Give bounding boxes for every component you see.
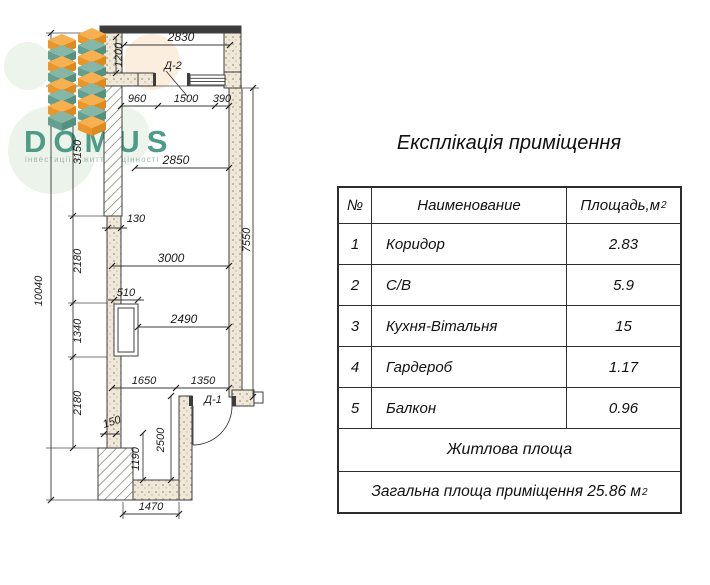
table-row: 4 Гардероб 1.17 [339, 346, 680, 387]
row-num: 4 [339, 347, 372, 387]
row-name: Гардероб [372, 347, 567, 387]
header-area-sup: 2 [661, 200, 667, 211]
row-area: 5.9 [567, 265, 680, 305]
row-name: С/В [372, 265, 567, 305]
header-area: Площадь,м2 [567, 188, 680, 223]
row-name: Коридор [372, 224, 567, 264]
header-area-text: Площадь,м [580, 197, 660, 214]
floor-plan-sheet: DOMUS інвестиції у життєві цінності [0, 0, 710, 585]
explication-table: № Наименование Площадь,м2 1 Коридор 2.83… [337, 186, 682, 514]
row-area: 1.17 [567, 347, 680, 387]
row-num: 1 [339, 224, 372, 264]
row-area: 2.83 [567, 224, 680, 264]
living-area-label: Житлова площа [339, 429, 680, 471]
table-header-row: № Наименование Площадь,м2 [339, 188, 680, 223]
row-area: 15 [567, 306, 680, 346]
header-num: № [339, 188, 372, 223]
table-footer-living: Житлова площа [339, 428, 680, 471]
table-row: 1 Коридор 2.83 [339, 223, 680, 264]
row-num: 3 [339, 306, 372, 346]
total-area-label: Загальна площа приміщення 25.86 м2 [339, 472, 680, 512]
table-row: 3 Кухня-Вітальня 15 [339, 305, 680, 346]
row-num: 2 [339, 265, 372, 305]
row-name: Балкон [372, 388, 567, 428]
row-num: 5 [339, 388, 372, 428]
table-row: 2 С/В 5.9 [339, 264, 680, 305]
table-footer-total: Загальна площа приміщення 25.86 м2 [339, 471, 680, 512]
row-area: 0.96 [567, 388, 680, 428]
header-name: Наименование [372, 188, 567, 223]
table-row: 5 Балкон 0.96 [339, 387, 680, 428]
total-area-sup: 2 [642, 487, 648, 498]
logo-buildings-icon [0, 0, 330, 585]
row-name: Кухня-Вітальня [372, 306, 567, 346]
total-area-text: Загальна площа приміщення 25.86 м [371, 483, 641, 501]
page-title: Експлікація приміщення [338, 132, 680, 155]
